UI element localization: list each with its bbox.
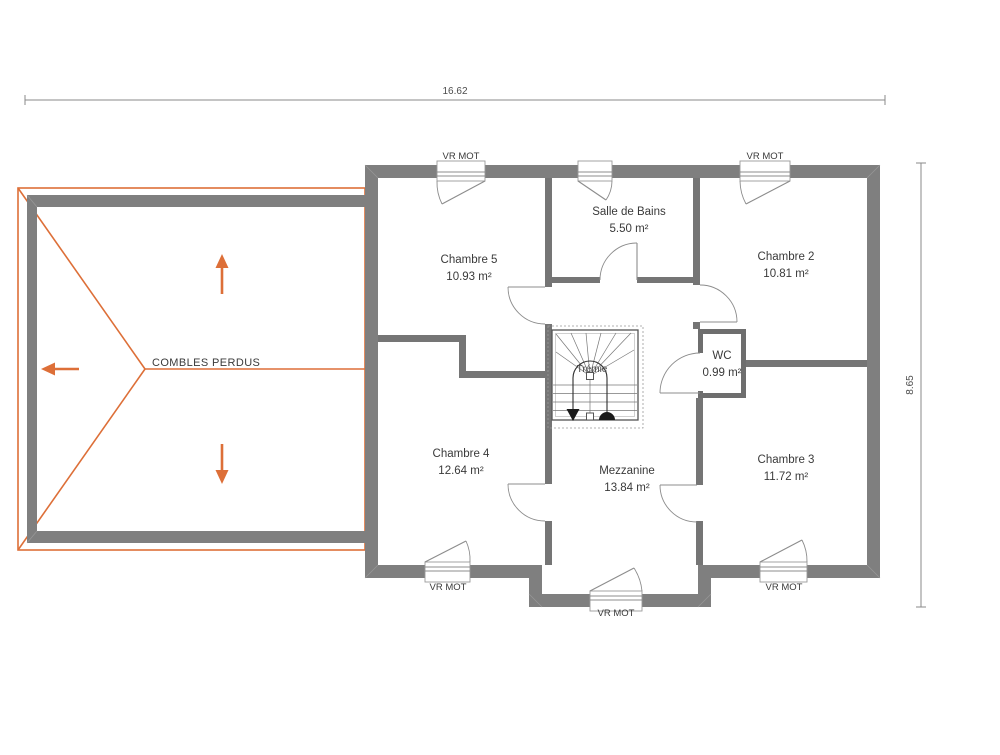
room-area: 0.99 m² — [703, 367, 742, 379]
room-name: Mezzanine — [599, 465, 655, 477]
floor-plan-drawing: 16.62 8.65 COMBLES PERDUS — [0, 0, 1000, 750]
window-chambre-2 — [740, 161, 790, 204]
dimension-top: 16.62 — [25, 86, 885, 105]
room-label-chambre-4: Chambre 4 12.64 m² — [433, 448, 490, 477]
shutter-label-chambre-5: VR MOT — [443, 151, 480, 162]
room-name: Chambre 3 — [758, 454, 815, 466]
room-area: 5.50 m² — [610, 223, 649, 235]
door-chambre-4 — [508, 484, 545, 521]
shutter-label-chambre-4: VR MOT — [430, 582, 467, 593]
door-chambre-2 — [700, 285, 737, 322]
room-name: WC — [712, 350, 731, 362]
window-chambre-3 — [760, 540, 807, 582]
room-name: Chambre 5 — [441, 254, 498, 266]
wc-walls — [698, 329, 746, 398]
overall-width-dimension: 16.62 — [442, 86, 467, 97]
room-label-chambre-3: Chambre 3 11.72 m² — [758, 454, 815, 483]
room-label-chambre-5: Chambre 5 10.93 m² — [441, 254, 498, 283]
room-area: 10.93 m² — [446, 271, 492, 283]
door-wc — [660, 353, 700, 393]
shutter-label-mezzanine: VR MOT — [598, 608, 635, 619]
roof-slope-left-arrow-icon — [41, 363, 79, 376]
room-label-salle-de-bains: Salle de Bains 5.50 m² — [592, 206, 666, 235]
room-label-chambre-2: Chambre 2 10.81 m² — [758, 251, 815, 280]
room-label-wc: WC 0.99 m² — [703, 350, 742, 379]
window-salle-de-bains — [578, 161, 612, 200]
room-area: 13.84 m² — [604, 482, 650, 494]
window-chambre-4 — [425, 541, 470, 582]
room-area: 12.64 m² — [438, 465, 484, 477]
door-salle-de-bains — [600, 243, 637, 280]
room-name: Chambre 2 — [758, 251, 815, 263]
floor-plan-page: 16.62 8.65 COMBLES PERDUS — [0, 0, 1000, 750]
roof-slope-up-arrow-icon — [216, 254, 229, 294]
room-area: 11.72 m² — [764, 471, 809, 483]
shutter-label-chambre-2: VR MOT — [747, 151, 784, 162]
room-area: 10.81 m² — [763, 268, 809, 280]
door-chambre-5 — [508, 287, 545, 324]
room-name: Chambre 4 — [433, 448, 490, 460]
shutter-label-chambre-3: VR MOT — [766, 582, 803, 593]
attic-label: COMBLES PERDUS — [152, 357, 260, 369]
door-chambre-3 — [660, 485, 697, 522]
overall-height-dimension: 8.65 — [905, 375, 916, 395]
roof-slope-down-arrow-icon — [216, 444, 229, 484]
room-label-mezzanine: Mezzanine 13.84 m² — [599, 465, 655, 494]
stair-opening-label: Trémie — [577, 364, 608, 375]
window-mezzanine — [590, 568, 642, 611]
room-name: Salle de Bains — [592, 206, 666, 218]
staircase: Trémie — [548, 326, 643, 428]
dimension-right: 8.65 — [905, 163, 926, 607]
window-chambre-5 — [437, 161, 485, 204]
